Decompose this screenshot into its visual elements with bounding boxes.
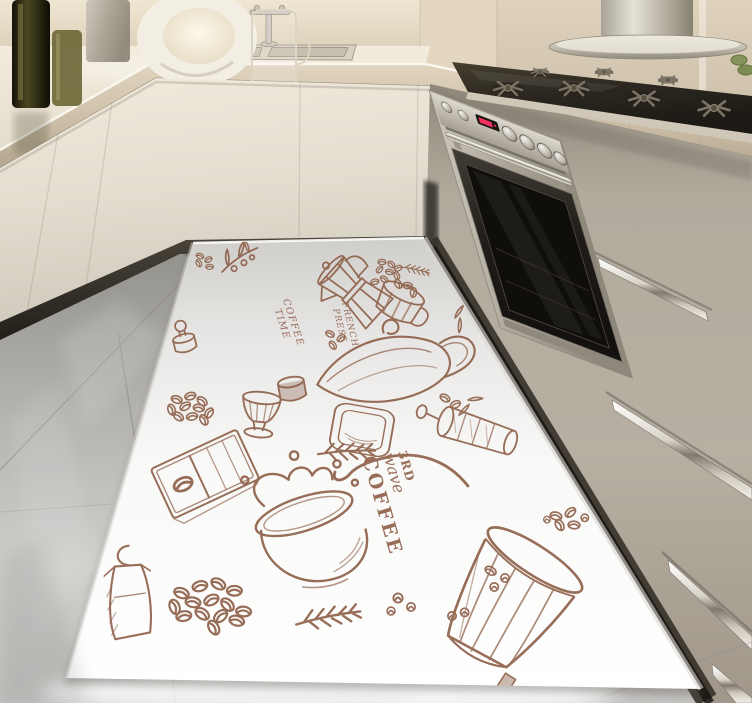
kitchen-screenshot: COFFEE TIME FRENCH PRESS <box>0 0 752 703</box>
oil-bottle-2 <box>52 30 82 106</box>
canister <box>86 0 130 62</box>
kitchen-scene: COFFEE TIME FRENCH PRESS <box>0 0 752 703</box>
oil-bottle <box>12 0 50 154</box>
